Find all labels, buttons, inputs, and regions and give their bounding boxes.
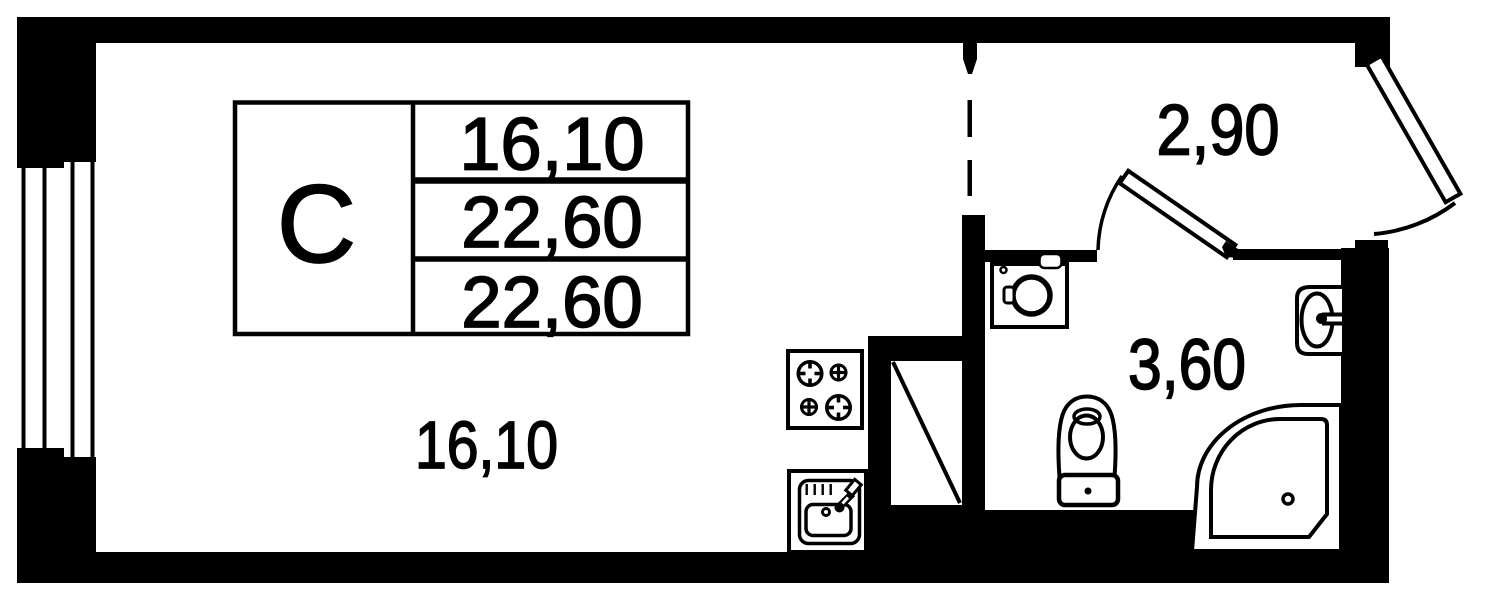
svg-text:С: С xyxy=(277,163,356,286)
svg-text:16,10: 16,10 xyxy=(415,408,558,483)
svg-text:16,10: 16,10 xyxy=(459,103,644,186)
svg-text:3,60: 3,60 xyxy=(1128,326,1246,405)
svg-text:22,60: 22,60 xyxy=(461,262,642,343)
svg-text:22,60: 22,60 xyxy=(461,182,642,263)
svg-text:2,90: 2,90 xyxy=(1157,92,1280,171)
